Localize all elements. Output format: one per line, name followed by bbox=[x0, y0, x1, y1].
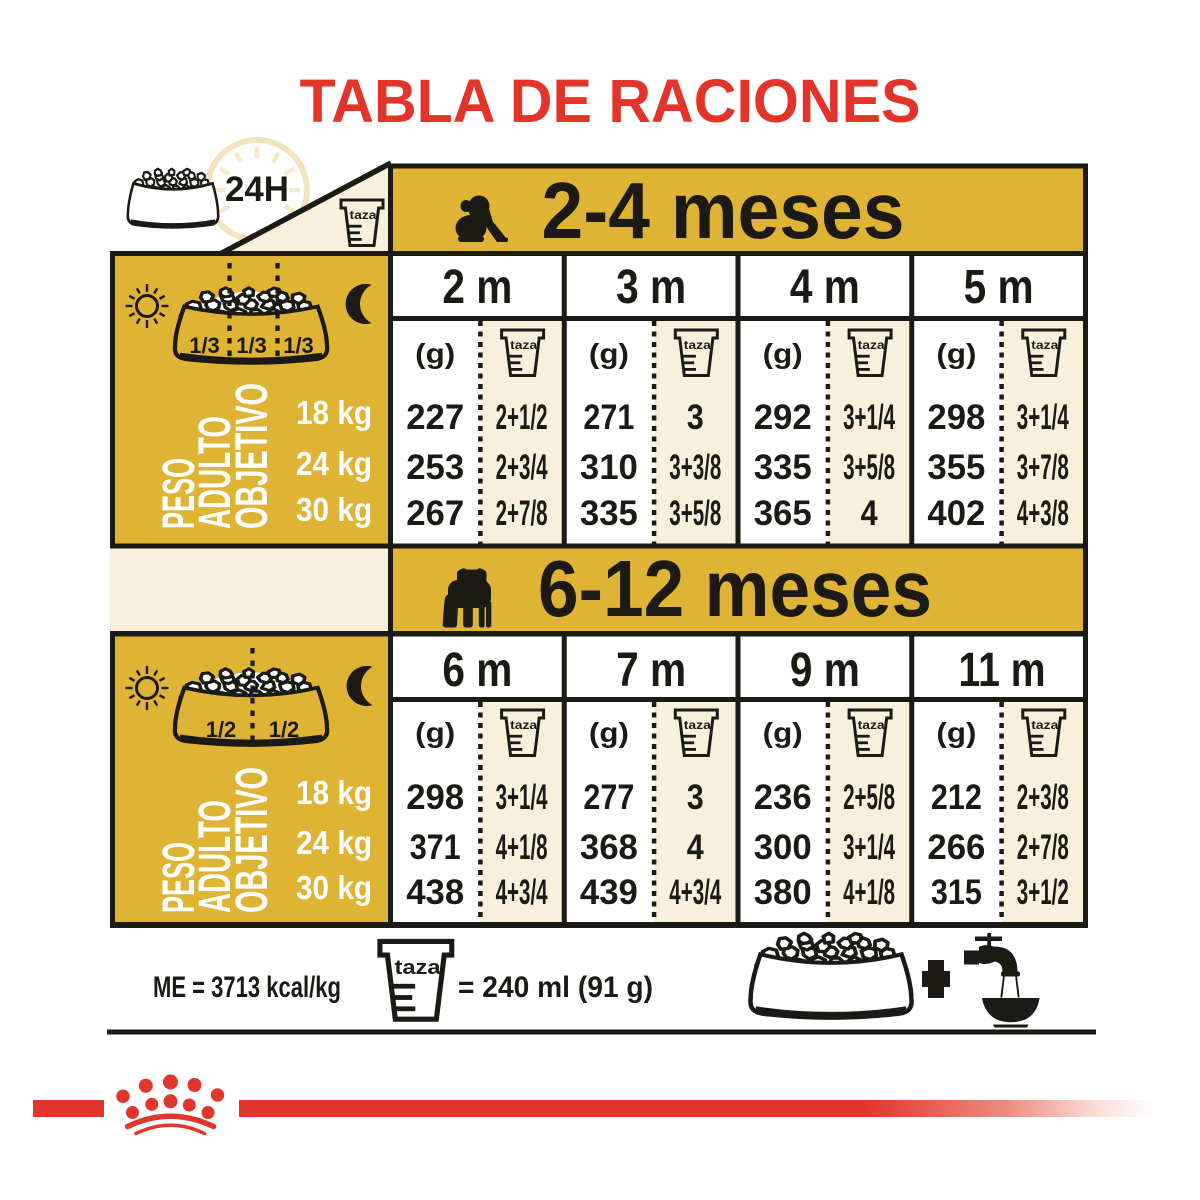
svg-text:3+7/8: 3+7/8 bbox=[1017, 448, 1069, 487]
svg-text:30 kg: 30 kg bbox=[296, 491, 372, 528]
svg-text:3+1/2: 3+1/2 bbox=[1017, 873, 1069, 912]
svg-text:3+5/8: 3+5/8 bbox=[843, 448, 895, 487]
svg-text:(g): (g) bbox=[936, 717, 976, 748]
svg-text:1/3: 1/3 bbox=[283, 333, 314, 358]
svg-text:402: 402 bbox=[927, 494, 985, 533]
svg-text:315: 315 bbox=[931, 873, 982, 912]
svg-text:2 m: 2 m bbox=[442, 261, 512, 314]
svg-text:4+1/8: 4+1/8 bbox=[843, 873, 895, 912]
svg-text:3: 3 bbox=[687, 398, 704, 437]
svg-text:266: 266 bbox=[927, 828, 985, 867]
svg-text:9 m: 9 m bbox=[790, 644, 860, 697]
svg-text:298: 298 bbox=[406, 778, 464, 817]
svg-text:OBJETIVO: OBJETIVO bbox=[226, 383, 277, 529]
svg-text:2+7/8: 2+7/8 bbox=[496, 494, 548, 533]
svg-text:(g): (g) bbox=[589, 338, 629, 369]
svg-text:1/2: 1/2 bbox=[206, 717, 237, 742]
svg-text:2+5/8: 2+5/8 bbox=[843, 778, 895, 817]
svg-text:3 m: 3 m bbox=[616, 261, 686, 314]
svg-text:292: 292 bbox=[754, 398, 812, 437]
svg-text:3+5/8: 3+5/8 bbox=[669, 494, 721, 533]
svg-text:236: 236 bbox=[754, 778, 812, 817]
svg-text:271: 271 bbox=[583, 398, 634, 437]
svg-text:(g): (g) bbox=[763, 338, 803, 369]
svg-text:1/3: 1/3 bbox=[236, 333, 267, 358]
svg-text:3+3/8: 3+3/8 bbox=[669, 448, 721, 487]
svg-text:212: 212 bbox=[931, 778, 982, 817]
svg-text:4+1/8: 4+1/8 bbox=[496, 828, 548, 867]
svg-text:4 m: 4 m bbox=[790, 261, 860, 314]
svg-text:24H: 24H bbox=[225, 170, 289, 209]
svg-text:2+7/8: 2+7/8 bbox=[1017, 828, 1069, 867]
svg-text:30 kg: 30 kg bbox=[296, 869, 372, 906]
svg-text:5 m: 5 m bbox=[964, 261, 1034, 314]
svg-text:(g): (g) bbox=[763, 717, 803, 748]
svg-text:OBJETIVO: OBJETIVO bbox=[226, 767, 277, 913]
svg-text:267: 267 bbox=[406, 494, 464, 533]
svg-text:300: 300 bbox=[754, 828, 812, 867]
svg-text:3+1/4: 3+1/4 bbox=[843, 828, 895, 867]
svg-text:TABLA DE RACIONES: TABLA DE RACIONES bbox=[300, 67, 921, 135]
svg-text:4: 4 bbox=[687, 828, 704, 867]
svg-text:335: 335 bbox=[754, 448, 812, 487]
svg-text:2-4 meses: 2-4 meses bbox=[542, 166, 905, 255]
svg-text:24 kg: 24 kg bbox=[296, 824, 372, 861]
svg-text:(g): (g) bbox=[589, 717, 629, 748]
svg-text:1/3: 1/3 bbox=[189, 333, 220, 358]
svg-text:2+1/2: 2+1/2 bbox=[496, 398, 548, 437]
svg-text:368: 368 bbox=[580, 828, 638, 867]
svg-text:277: 277 bbox=[583, 778, 634, 817]
svg-text:227: 227 bbox=[406, 398, 464, 437]
svg-text:310: 310 bbox=[580, 448, 638, 487]
svg-text:2+3/8: 2+3/8 bbox=[1017, 778, 1069, 817]
svg-text:24 kg: 24 kg bbox=[296, 445, 372, 482]
svg-text:365: 365 bbox=[754, 494, 812, 533]
svg-text:= 240 ml (91 g): = 240 ml (91 g) bbox=[458, 971, 653, 1004]
svg-text:7 m: 7 m bbox=[616, 644, 686, 697]
svg-text:4+3/4: 4+3/4 bbox=[669, 873, 721, 912]
svg-text:335: 335 bbox=[580, 494, 638, 533]
svg-text:355: 355 bbox=[927, 448, 985, 487]
svg-text:18 kg: 18 kg bbox=[296, 774, 372, 811]
svg-text:253: 253 bbox=[406, 448, 464, 487]
svg-text:6 m: 6 m bbox=[442, 644, 512, 697]
svg-text:4+3/8: 4+3/8 bbox=[1017, 494, 1069, 533]
svg-text:2+3/4: 2+3/4 bbox=[496, 448, 548, 487]
svg-text:3: 3 bbox=[687, 778, 704, 817]
svg-text:11 m: 11 m bbox=[959, 644, 1046, 697]
svg-text:371: 371 bbox=[410, 828, 461, 867]
svg-text:3+1/4: 3+1/4 bbox=[1017, 398, 1069, 437]
svg-text:438: 438 bbox=[406, 873, 464, 912]
svg-text:ME = 3713 kcal/kg: ME = 3713 kcal/kg bbox=[153, 971, 341, 1004]
svg-text:298: 298 bbox=[927, 398, 985, 437]
svg-text:(g): (g) bbox=[415, 338, 455, 369]
svg-text:(g): (g) bbox=[415, 717, 455, 748]
svg-text:3+1/4: 3+1/4 bbox=[496, 778, 548, 817]
svg-text:439: 439 bbox=[580, 873, 638, 912]
svg-text:3+1/4: 3+1/4 bbox=[843, 398, 895, 437]
svg-text:1/2: 1/2 bbox=[269, 717, 300, 742]
svg-text:380: 380 bbox=[754, 873, 812, 912]
svg-text:(g): (g) bbox=[936, 338, 976, 369]
svg-text:4: 4 bbox=[861, 494, 878, 533]
svg-text:6-12 meses: 6-12 meses bbox=[538, 544, 932, 633]
svg-text:4+3/4: 4+3/4 bbox=[496, 873, 548, 912]
svg-text:18 kg: 18 kg bbox=[296, 394, 372, 431]
